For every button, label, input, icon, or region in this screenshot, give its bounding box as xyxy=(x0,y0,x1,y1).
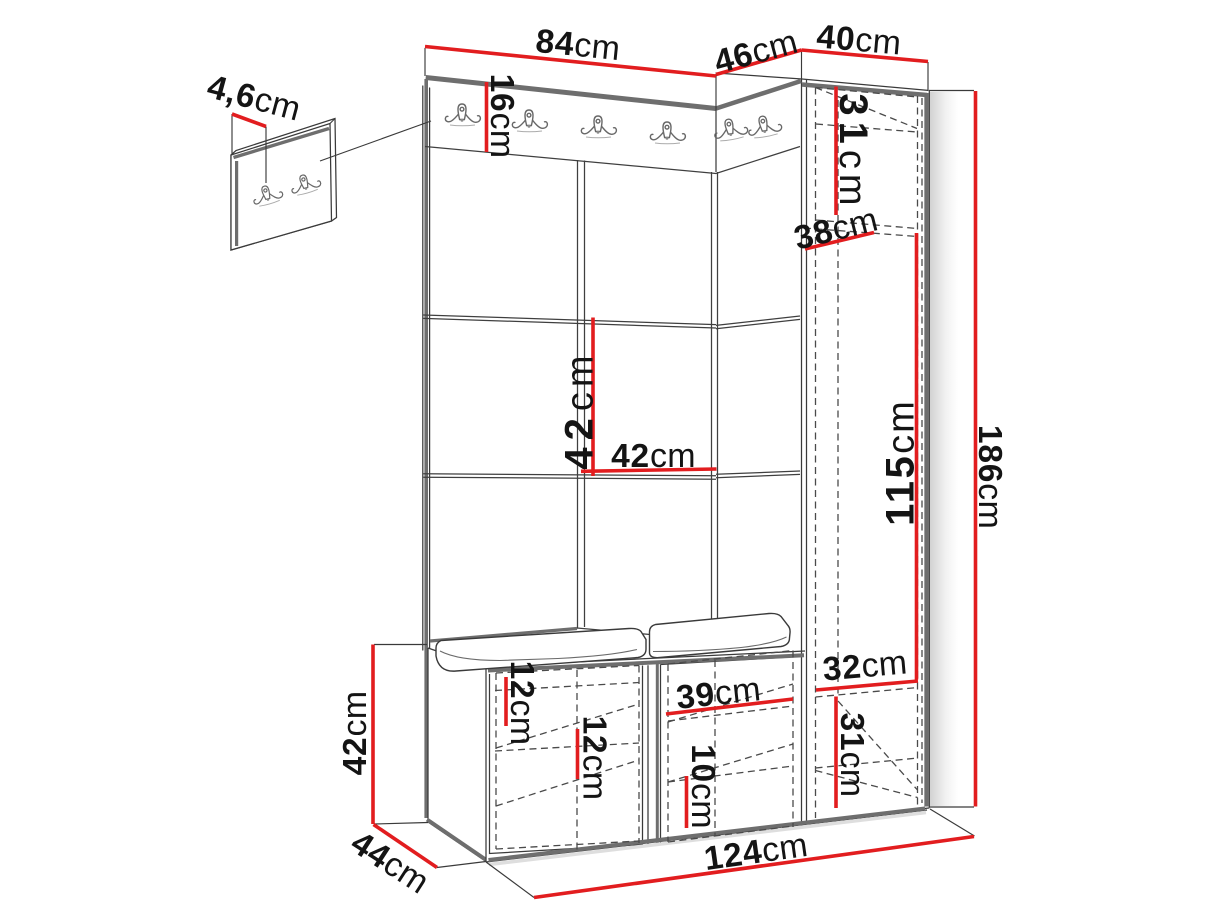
svg-text:12cm: 12cm xyxy=(503,661,541,746)
svg-text:40cm: 40cm xyxy=(815,17,903,62)
svg-text:186cm: 186cm xyxy=(971,425,1009,529)
svg-text:12cm: 12cm xyxy=(576,716,614,801)
svg-text:31cm: 31cm xyxy=(831,93,875,210)
svg-text:31cm: 31cm xyxy=(833,713,871,798)
svg-text:32cm: 32cm xyxy=(821,643,909,688)
svg-text:42cm: 42cm xyxy=(558,350,602,469)
svg-text:10cm: 10cm xyxy=(684,744,722,829)
svg-text:115cm: 115cm xyxy=(879,399,923,526)
svg-text:42cm: 42cm xyxy=(611,437,696,475)
svg-text:42cm: 42cm xyxy=(336,691,374,776)
svg-text:16cm: 16cm xyxy=(483,74,521,159)
